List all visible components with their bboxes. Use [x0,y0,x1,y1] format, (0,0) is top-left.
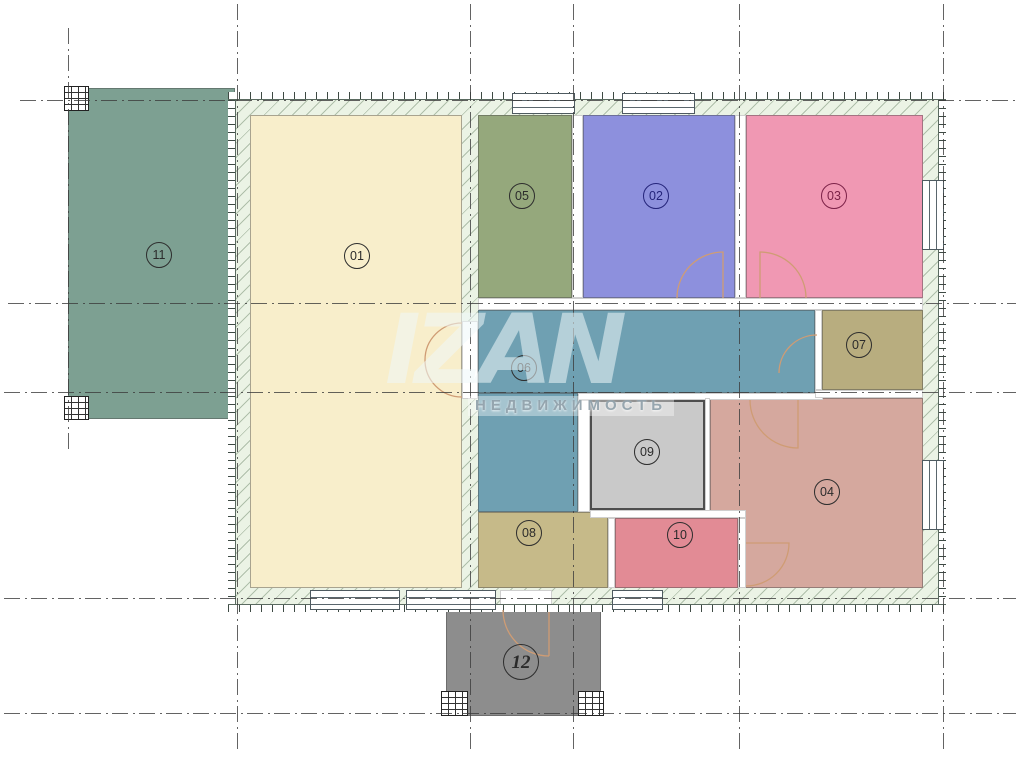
wall-segment [705,398,710,512]
grid-line-vertical [573,4,574,754]
room-label-01: 01 [344,243,370,269]
wall-segment [608,518,615,588]
window [512,93,575,114]
room-label-11: 11 [146,242,172,268]
wall-brick-band-left [228,100,236,604]
grid-line-horizontal [4,392,1016,393]
window [612,590,663,610]
grid-line-horizontal [8,303,1016,304]
grid-line-horizontal [20,100,1016,101]
room-07 [822,310,923,390]
grid-line-vertical [237,4,238,754]
wall-segment [735,115,746,298]
room-08 [478,512,608,588]
window [622,93,695,114]
grid-line-vertical [68,28,69,452]
wall-segment [590,510,746,518]
grid-line-vertical [739,4,740,754]
room-label-03: 03 [821,183,847,209]
window [922,180,944,250]
room-label-05: 05 [509,183,535,209]
grid-line-vertical [470,4,471,754]
room-06 [478,393,578,512]
wall-segment [478,298,923,310]
floor-plan-canvas: IZAN НЕДВИЖИМОСТЬ 1112010502030607040910… [0,0,1023,758]
wall-segment [578,393,823,400]
room-label-04: 04 [814,479,840,505]
room-label-09: 09 [634,439,660,465]
room-label-10: 10 [667,522,693,548]
window [406,590,496,610]
grid-line-horizontal [4,713,1016,714]
room-label-08: 08 [516,520,542,546]
grid-line-vertical [943,4,944,754]
room-label-06: 06 [511,355,537,381]
grid-line-horizontal [4,598,1016,599]
room-label-12: 12 [503,644,539,680]
room-06 [478,310,815,393]
window [922,460,944,530]
wall-brick-band-top [228,92,946,100]
wall-segment [578,400,590,512]
wall-segment [815,310,822,390]
room-label-07: 07 [846,332,872,358]
room-01 [250,115,462,588]
room-label-02: 02 [643,183,669,209]
window [310,590,400,610]
